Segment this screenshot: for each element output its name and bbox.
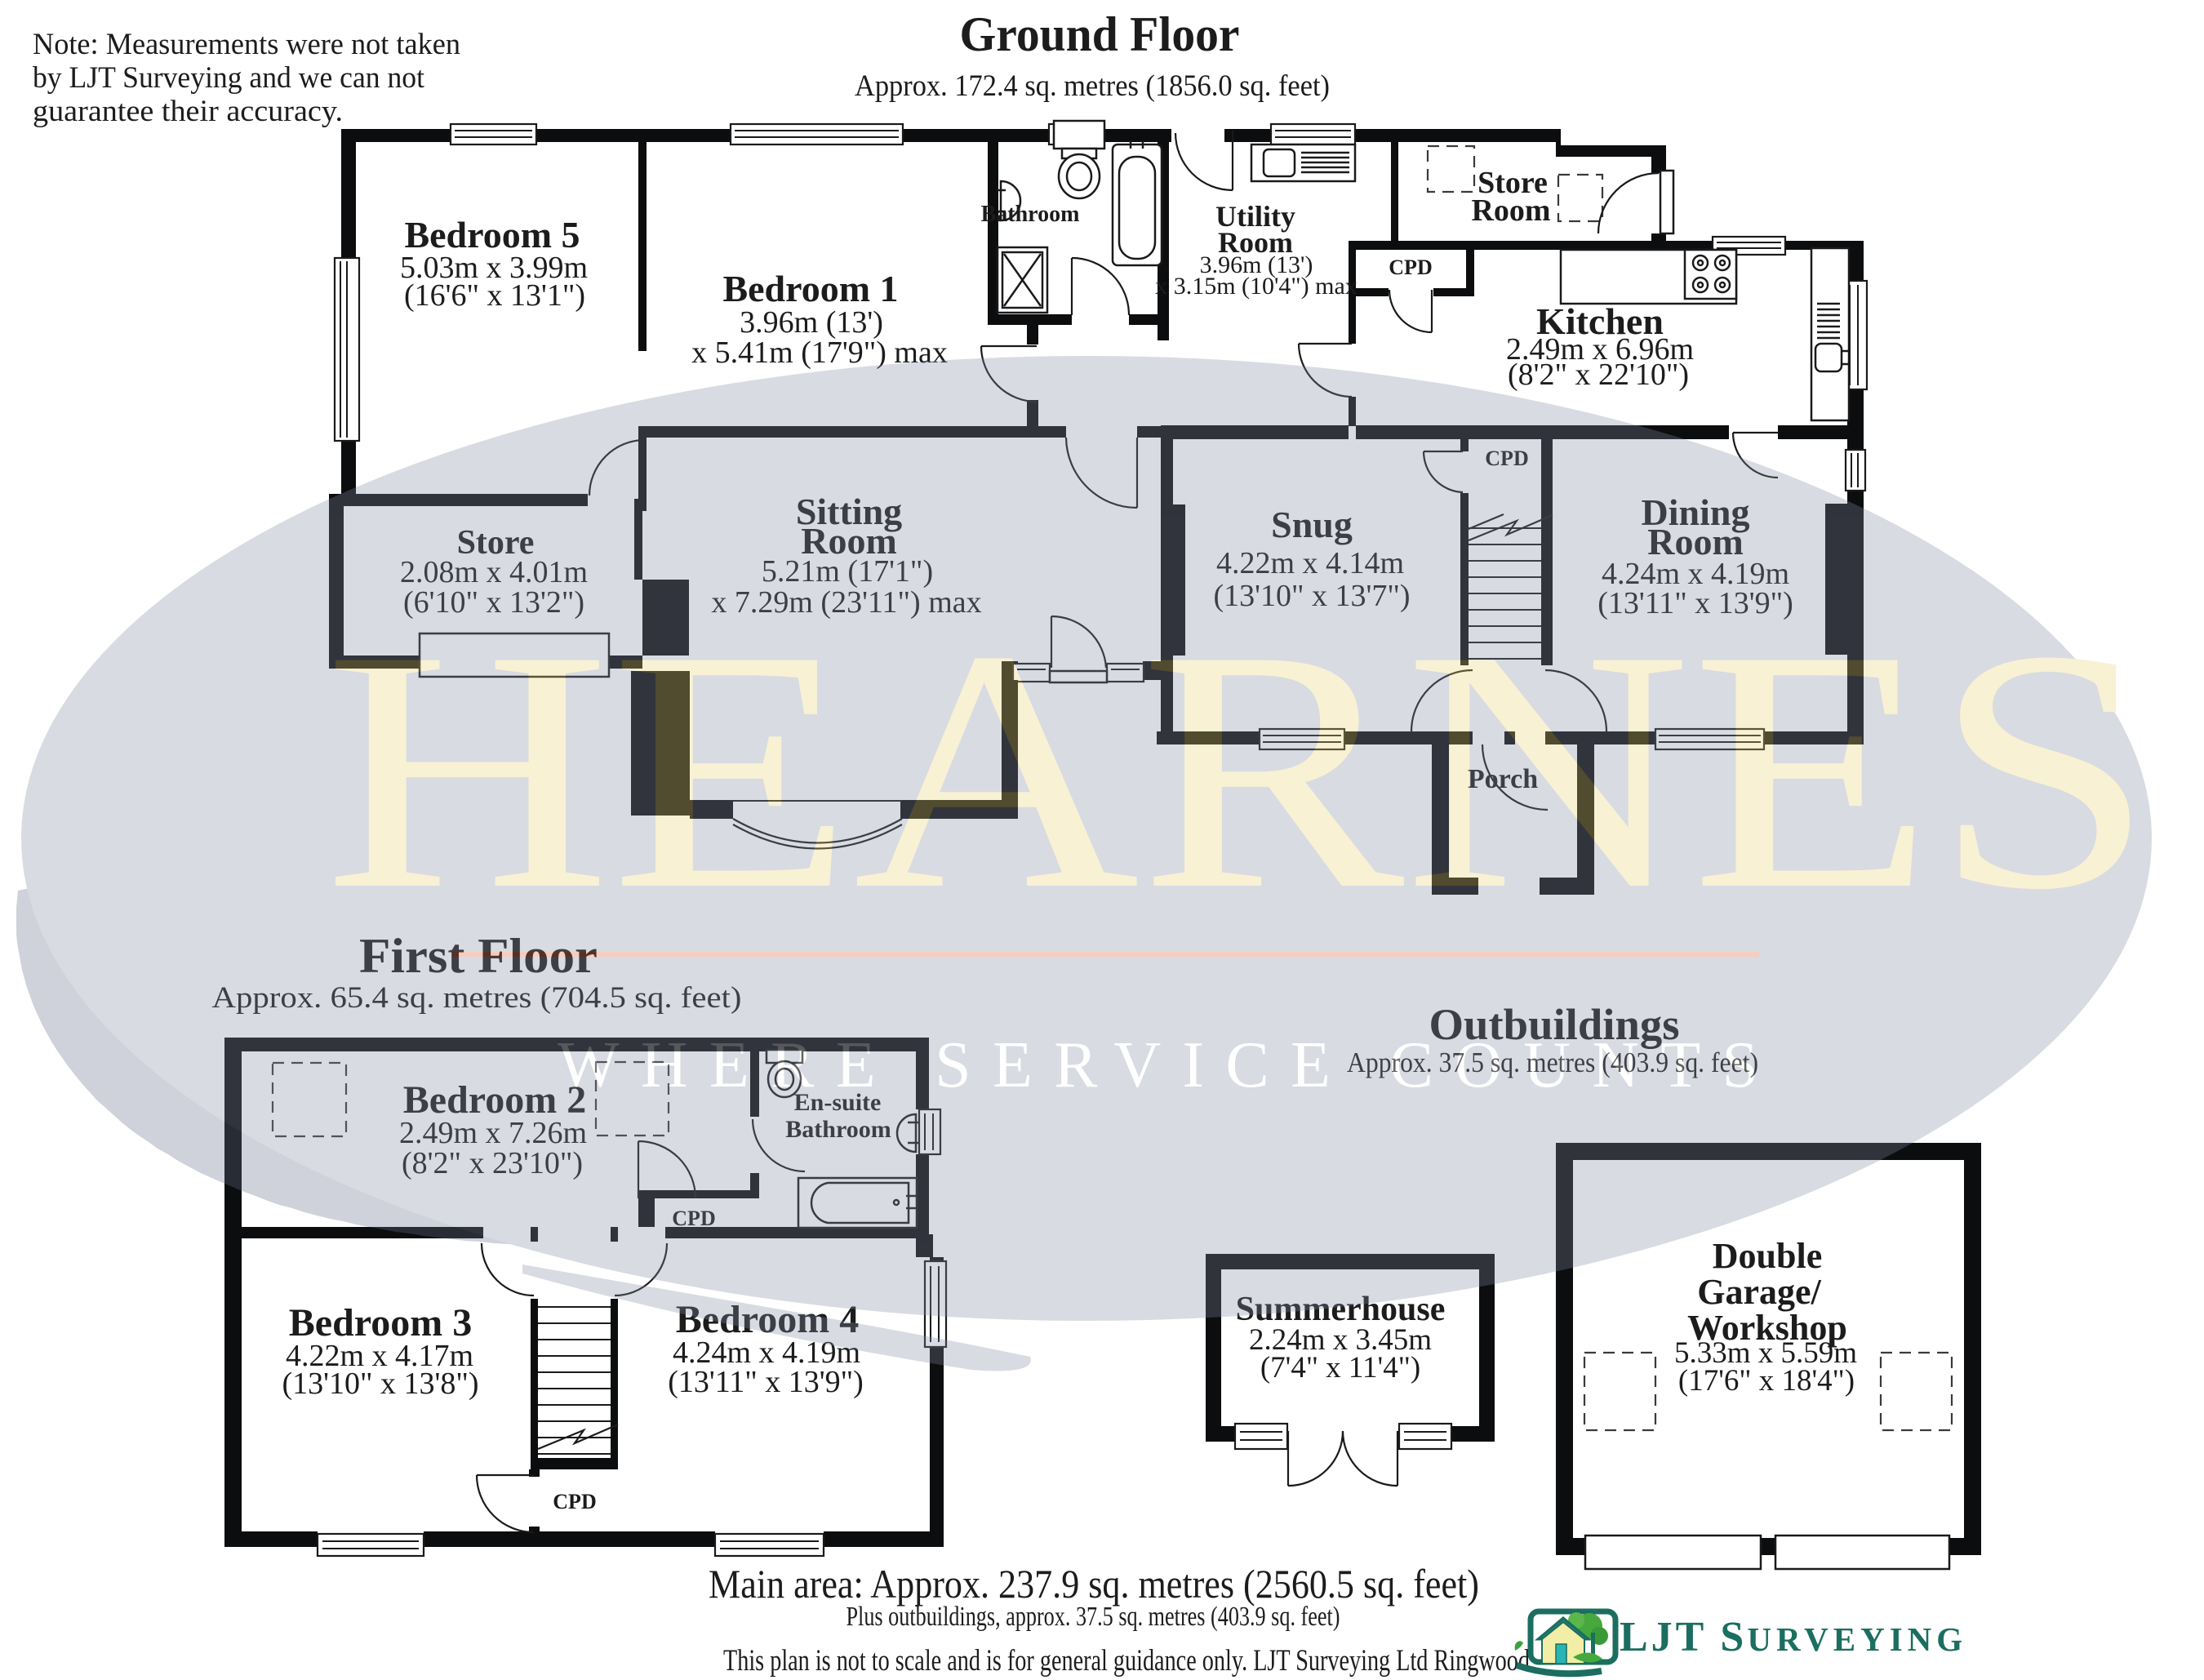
svg-text:3.96m (13'): 3.96m (13'): [740, 305, 883, 340]
svg-text:Main area: Approx. 237.9 sq. m: Main area: Approx. 237.9 sq. metres (256…: [709, 1561, 1479, 1607]
svg-text:(16'6" x 13'1"): (16'6" x 13'1"): [404, 278, 585, 313]
svg-text:Bedroom 1: Bedroom 1: [722, 268, 898, 309]
svg-text:Garage/: Garage/: [1697, 1272, 1821, 1312]
svg-text:This plan is not to scale and: This plan is not to scale and is for gen…: [723, 1644, 1530, 1678]
svg-text:Note: Measurements were not ta: Note: Measurements were not taken: [33, 28, 460, 61]
svg-text:by LJT Surveying and we can no: by LJT Surveying and we can not: [33, 61, 425, 95]
svg-text:(17'6" x 18'4"): (17'6" x 18'4"): [1678, 1364, 1855, 1398]
svg-text:guarantee their accuracy.: guarantee their accuracy.: [33, 95, 343, 128]
svg-text:(13'10" x 13'8"): (13'10" x 13'8"): [282, 1367, 478, 1401]
svg-text:(8'2" x 22'10"): (8'2" x 22'10"): [1508, 358, 1689, 392]
svg-text:Room: Room: [1471, 193, 1550, 228]
svg-text:(7'4" x 11'4"): (7'4" x 11'4"): [1260, 1351, 1420, 1384]
svg-text:CPD: CPD: [553, 1490, 596, 1513]
svg-text:Ground Floor: Ground Floor: [960, 7, 1240, 61]
svg-text:Double: Double: [1713, 1236, 1822, 1276]
svg-text:CPD: CPD: [1389, 256, 1432, 279]
svg-text:x 3.15m (10'4") max: x 3.15m (10'4") max: [1155, 273, 1358, 300]
svg-text:Plus outbuildings, approx. 37.: Plus outbuildings, approx. 37.5 sq. metr…: [846, 1602, 1340, 1632]
svg-text:HEARNES: HEARNES: [324, 580, 2154, 961]
svg-text:LJT SURVEYING: LJT SURVEYING: [1620, 1614, 1967, 1660]
svg-text:Bedroom 5: Bedroom 5: [404, 214, 580, 256]
svg-text:(13'11" x 13'9"): (13'11" x 13'9"): [668, 1365, 864, 1399]
svg-text:Bathroom: Bathroom: [981, 202, 1080, 227]
svg-text:Approx. 172.4 sq. metres (1856: Approx. 172.4 sq. metres (1856.0 sq. fee…: [855, 69, 1330, 103]
